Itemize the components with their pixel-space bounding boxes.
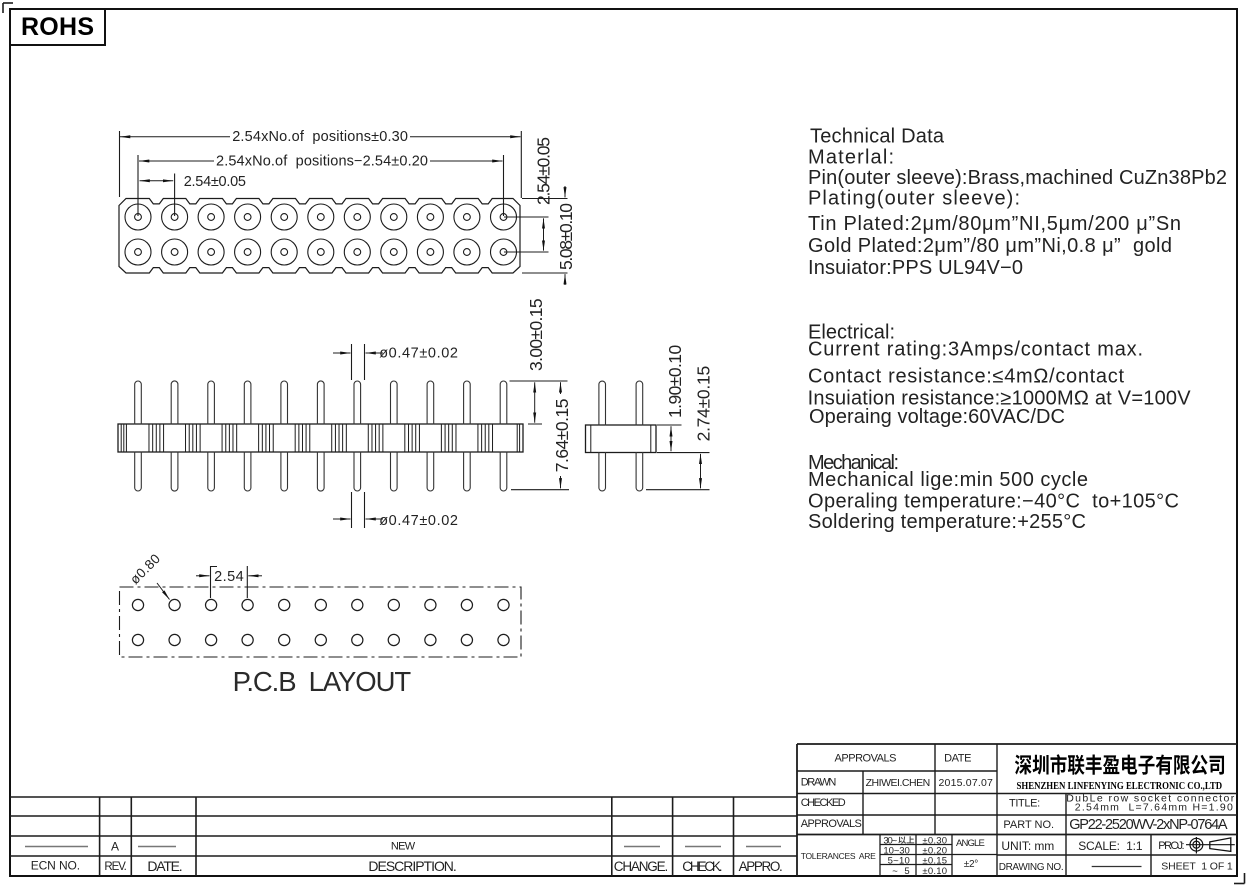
svg-text:P.C.B LAYOUT: P.C.B LAYOUT: [233, 666, 412, 697]
svg-text:2015.07.07: 2015.07.07: [939, 777, 994, 789]
svg-text:2.74±0.15: 2.74±0.15: [693, 366, 713, 442]
svg-text:Soldering temperature:+255°C: Soldering temperature:+255°C: [808, 511, 1086, 533]
svg-text:ZHIWEI.CHEN: ZHIWEI.CHEN: [866, 777, 931, 789]
svg-text:ECN NO.: ECN NO.: [31, 859, 80, 873]
svg-text:GP22-2520WV-2xNP-0764A: GP22-2520WV-2xNP-0764A: [1069, 817, 1228, 833]
svg-text:Insuiator:PPS UL94V−0: Insuiator:PPS UL94V−0: [808, 257, 1023, 279]
svg-text:2.54±0.05: 2.54±0.05: [184, 174, 246, 190]
svg-text:SHENZHEN LINFENYING ELECTRONIC: SHENZHEN LINFENYING ELECTRONIC CO.,LTD: [1017, 780, 1223, 792]
svg-text:TITLE:: TITLE:: [1009, 798, 1040, 810]
svg-text:DRAWING NO.: DRAWING NO.: [999, 862, 1064, 873]
svg-text:~ 5: ~ 5: [892, 866, 909, 877]
svg-text:ø0.80: ø0.80: [127, 551, 163, 587]
svg-text:SCALE: 1:1: SCALE: 1:1: [1078, 839, 1143, 853]
svg-text:7.64±0.15: 7.64±0.15: [552, 399, 572, 473]
svg-text:2.54: 2.54: [214, 569, 244, 585]
svg-text:Tin Plated:2μm/80μm”NI,5μm/200: Tin Plated:2μm/80μm”NI,5μm/200 μ”Sn: [808, 213, 1181, 235]
svg-text:2.54±0.05: 2.54±0.05: [534, 137, 554, 205]
svg-text:PROJ:: PROJ:: [1158, 840, 1184, 852]
svg-text:APPRO.: APPRO.: [739, 859, 783, 874]
svg-text:5.08±0.10: 5.08±0.10: [556, 203, 576, 270]
svg-text:3.00±0.15: 3.00±0.15: [526, 298, 546, 371]
svg-text:A: A: [111, 840, 119, 854]
svg-text:DATE: DATE: [944, 752, 971, 764]
svg-text:ø0.47±0.02: ø0.47±0.02: [379, 345, 458, 361]
svg-text:UNIT: mm: UNIT: mm: [1001, 839, 1054, 853]
svg-text:Operaing voltage:60VAC/DC: Operaing voltage:60VAC/DC: [809, 406, 1065, 428]
svg-text:±2°: ±2°: [964, 859, 978, 870]
svg-text:DRAWN: DRAWN: [801, 777, 837, 789]
svg-text:ROHS: ROHS: [21, 13, 94, 41]
svg-text:APPROVALS: APPROVALS: [801, 818, 862, 830]
svg-text:Contact resistance:≤4mΩ/contac: Contact resistance:≤4mΩ/contact: [808, 366, 1124, 388]
svg-text:PART NO.: PART NO.: [1003, 819, 1054, 831]
svg-text:TOLERANCES ARE: TOLERANCES ARE: [801, 851, 876, 861]
svg-text:REV.: REV.: [104, 861, 126, 873]
svg-text:2.54xNo.of positions−2.54±0.2: 2.54xNo.of positions−2.54±0.20: [216, 154, 428, 170]
svg-text:Technical Data: Technical Data: [810, 125, 945, 147]
svg-text:Current rating:3Amps/contact m: Current rating:3Amps/contact max.: [808, 339, 1143, 361]
svg-text:2.54xNo.of positions±0.30: 2.54xNo.of positions±0.30: [232, 129, 408, 145]
svg-text:1.90±0.10: 1.90±0.10: [665, 345, 685, 418]
svg-text:ø0.47±0.02: ø0.47±0.02: [379, 513, 458, 529]
svg-text:SHEET 1 OF 1: SHEET 1 OF 1: [1161, 861, 1233, 873]
svg-text:Plating(outer sleeve):: Plating(outer sleeve):: [808, 187, 1020, 209]
svg-text:DESCRIPTION.: DESCRIPTION.: [368, 858, 456, 874]
svg-text:Operaling temperature:−40°C t: Operaling temperature:−40°C to+105°C: [808, 491, 1179, 513]
svg-text:Pin(outer sleeve):Brass,machin: Pin(outer sleeve):Brass,machined CuZn38P…: [808, 167, 1227, 189]
svg-text:Mechanical lige:min 500 cycle: Mechanical lige:min 500 cycle: [808, 469, 1088, 491]
svg-text:APPROVALS: APPROVALS: [835, 752, 897, 764]
svg-text:Gold Plated:2μm”/80 μm”Ni,0.8: Gold Plated:2μm”/80 μm”Ni,0.8 μ” gold: [808, 235, 1172, 257]
svg-text:DATE.: DATE.: [147, 858, 182, 874]
svg-text:2.54mm L=7.64mm H=1.90: 2.54mm L=7.64mm H=1.90: [1075, 802, 1233, 814]
svg-text:CHANGE.: CHANGE.: [614, 859, 669, 874]
svg-text:CHECK.: CHECK.: [682, 859, 722, 874]
svg-text:CHECKED: CHECKED: [801, 797, 846, 809]
svg-text:ANGLE: ANGLE: [956, 838, 985, 849]
svg-text:NEW: NEW: [391, 840, 416, 852]
svg-text:±0.10: ±0.10: [922, 866, 947, 877]
svg-text:Materlal:: Materlal:: [808, 146, 894, 168]
